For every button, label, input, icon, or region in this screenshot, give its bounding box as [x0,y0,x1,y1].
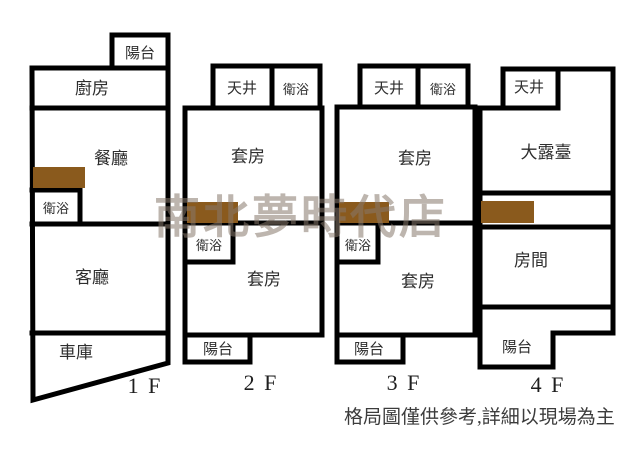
3f-suite-lower-label: 套房 [401,272,435,291]
disclaimer-note: 格局圖僅供參考,詳細以現場為主 [344,406,615,428]
3f-atrium-label: 天井 [374,80,404,97]
1f-dining-label: 餐廳 [94,149,128,168]
1f-stairs-marker [33,167,85,188]
2f-balcony-label: 陽台 [203,341,233,358]
1f-floor-label: 1 F [128,373,163,398]
2f-suite-lower-label: 套房 [247,270,281,289]
4f-floor-label: 4 F [531,372,566,397]
3f-balcony-label: 陽台 [354,341,384,358]
3f-suite-upper-label: 套房 [398,149,432,168]
4f-terrace-label: 大露臺 [521,143,572,162]
1f-garage-label: 車庫 [59,343,93,362]
1f-bath-label: 衛浴 [43,201,69,216]
1f-living-label: 客廳 [75,268,109,287]
floorplan-4f: 天井 大露臺 房間 陽台 4 F [480,69,613,397]
2f-floor-label: 2 F [244,370,279,395]
4f-balcony-label: 陽台 [502,339,532,356]
4f-stairs-marker [481,201,534,223]
store-watermark: 南北夢時代店 [154,192,448,243]
floorplan-1f: 陽台 廚房 餐廳 衛浴 客廳 車庫 1 F [32,35,168,400]
floorplan-canvas: 陽台 廚房 餐廳 衛浴 客廳 車庫 1 F 天井 衛浴 套房 衛浴 套房 陽台 … [0,0,640,449]
4f-atrium-label: 天井 [514,79,544,96]
4f-room-label: 房間 [514,251,548,270]
3f-floor-label: 3 F [387,370,422,395]
1f-outline [32,68,168,400]
1f-balcony-label: 陽台 [125,45,155,62]
2f-suite-upper-label: 套房 [231,147,265,166]
floorplan-svg: 陽台 廚房 餐廳 衛浴 客廳 車庫 1 F 天井 衛浴 套房 衛浴 套房 陽台 … [0,0,640,449]
2f-bathtop-label: 衛浴 [283,82,309,97]
3f-bathtop-label: 衛浴 [430,82,456,97]
2f-atrium-label: 天井 [227,80,257,97]
1f-kitchen-label: 廚房 [75,78,109,98]
